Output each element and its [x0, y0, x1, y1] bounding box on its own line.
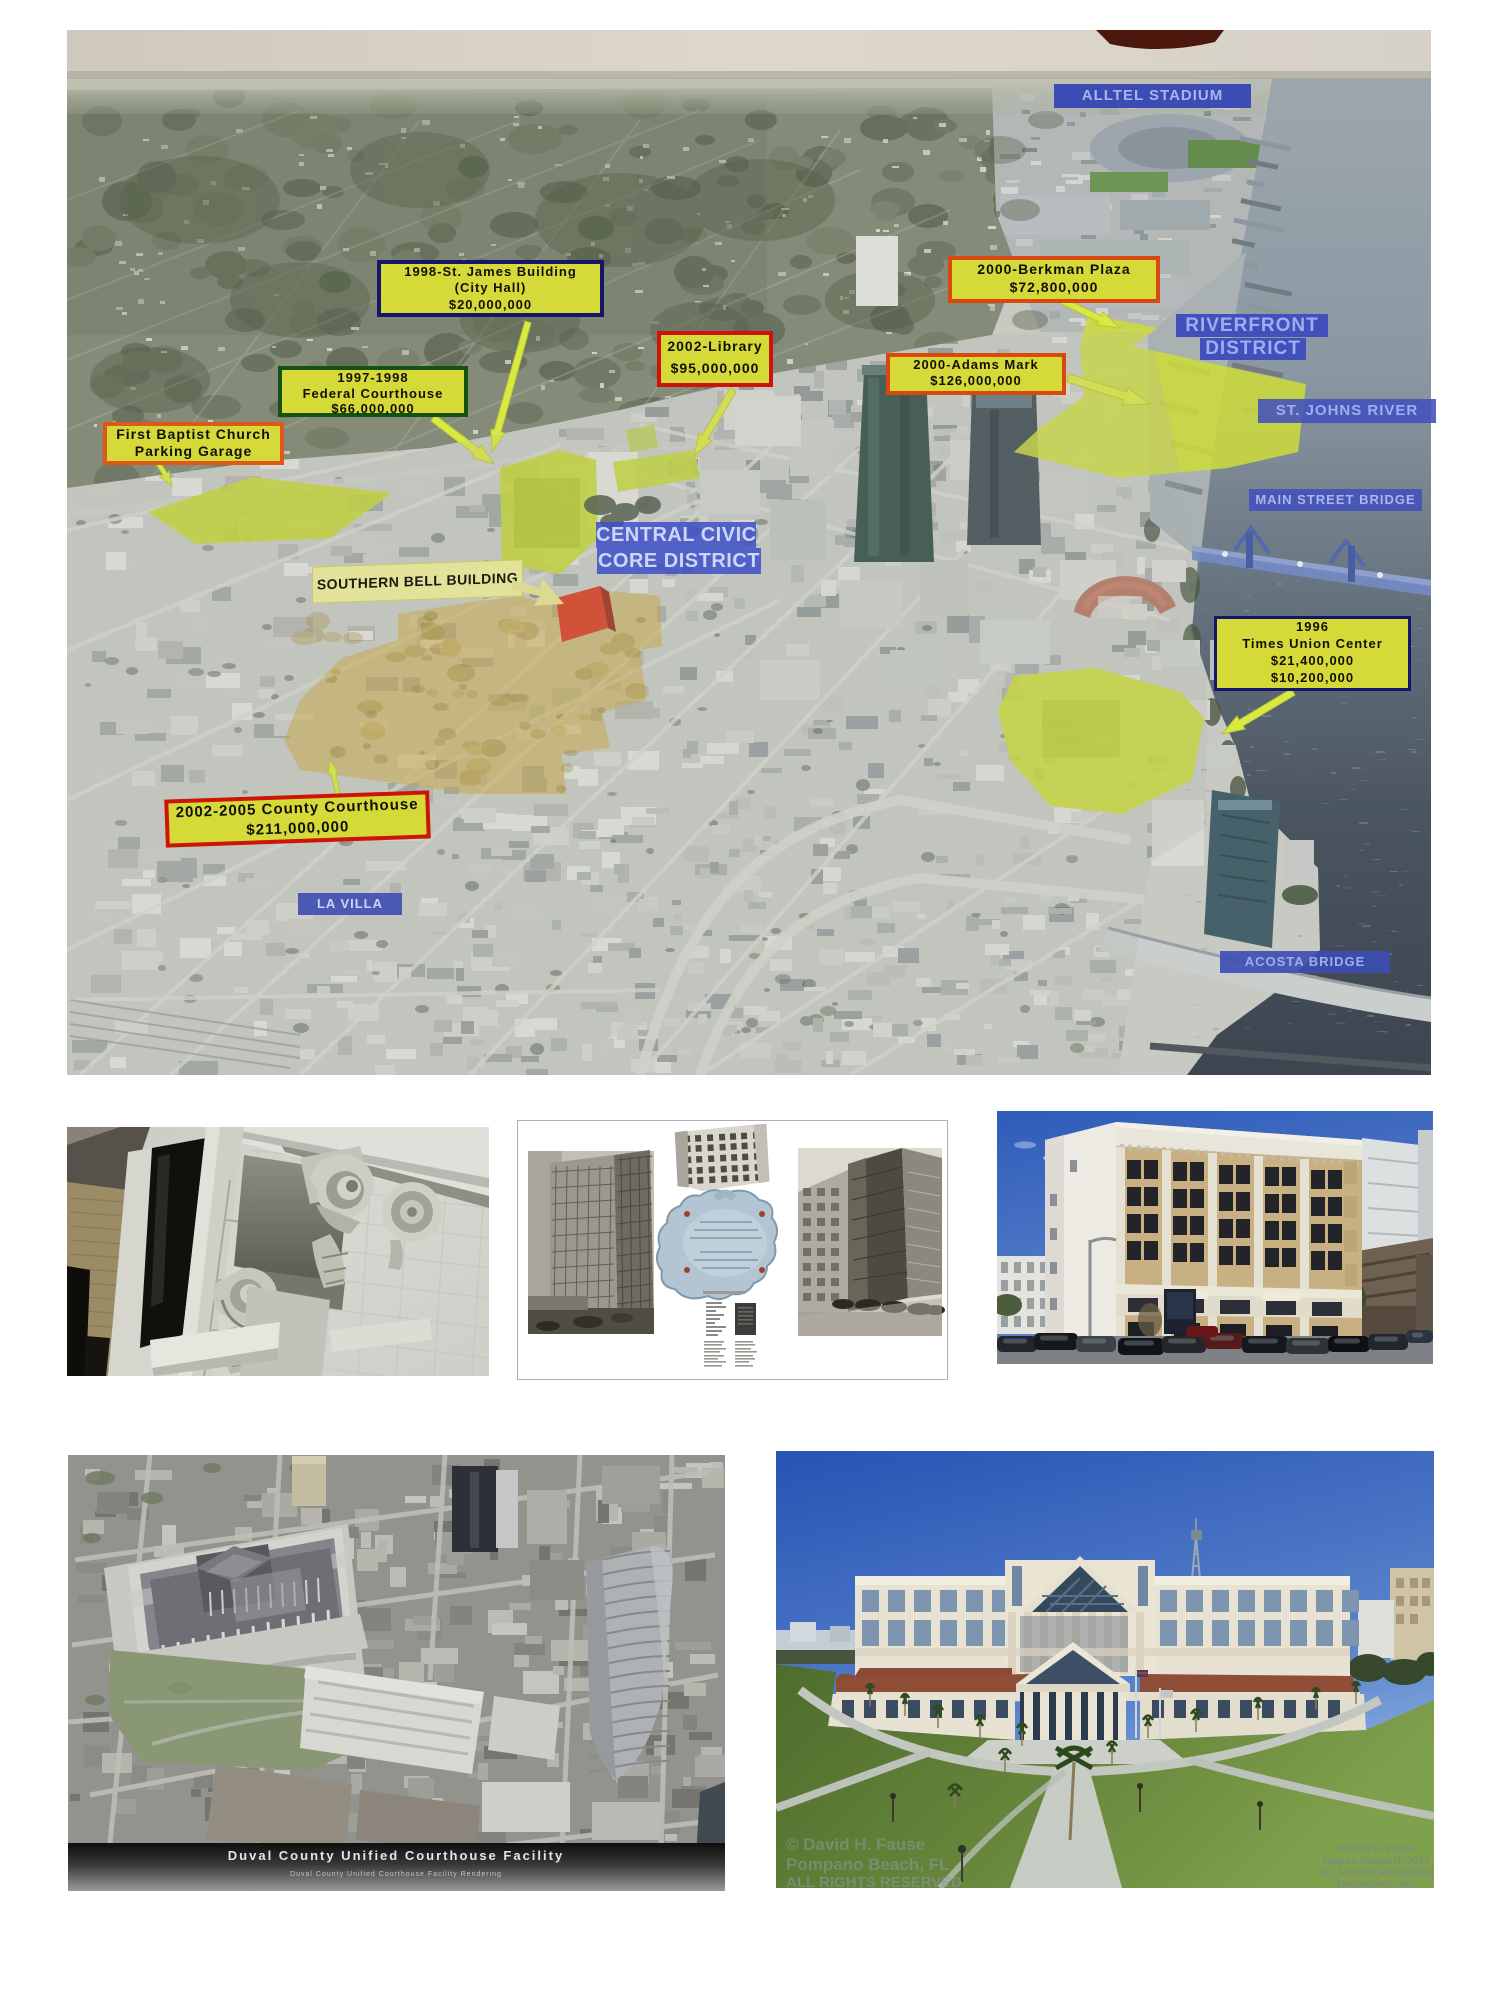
svg-text:ALL RIGHTS RESERVED: ALL RIGHTS RESERVED	[786, 1874, 962, 1888]
svg-text:Duval County Unified Courthous: Duval County Unified Courthouse Facility	[228, 1848, 564, 1863]
svg-text:ALL RIGHTS RESERVED: ALL RIGHTS RESERVED	[1318, 1868, 1434, 1879]
svg-text:Magnus Research 2014: Magnus Research 2014	[1323, 1856, 1430, 1867]
svg-text:© David H. Fause: © David H. Fause	[786, 1835, 925, 1854]
svg-text:©David H. Fause: ©David H. Fause	[1338, 1844, 1415, 1855]
svg-text:MagnusWeb.com: MagnusWeb.com	[1337, 1879, 1415, 1888]
svg-text:Pompano Beach, FL: Pompano Beach, FL	[786, 1855, 949, 1874]
svg-text:Duval County Unified Courthous: Duval County Unified Courthouse Facility…	[290, 1871, 502, 1878]
